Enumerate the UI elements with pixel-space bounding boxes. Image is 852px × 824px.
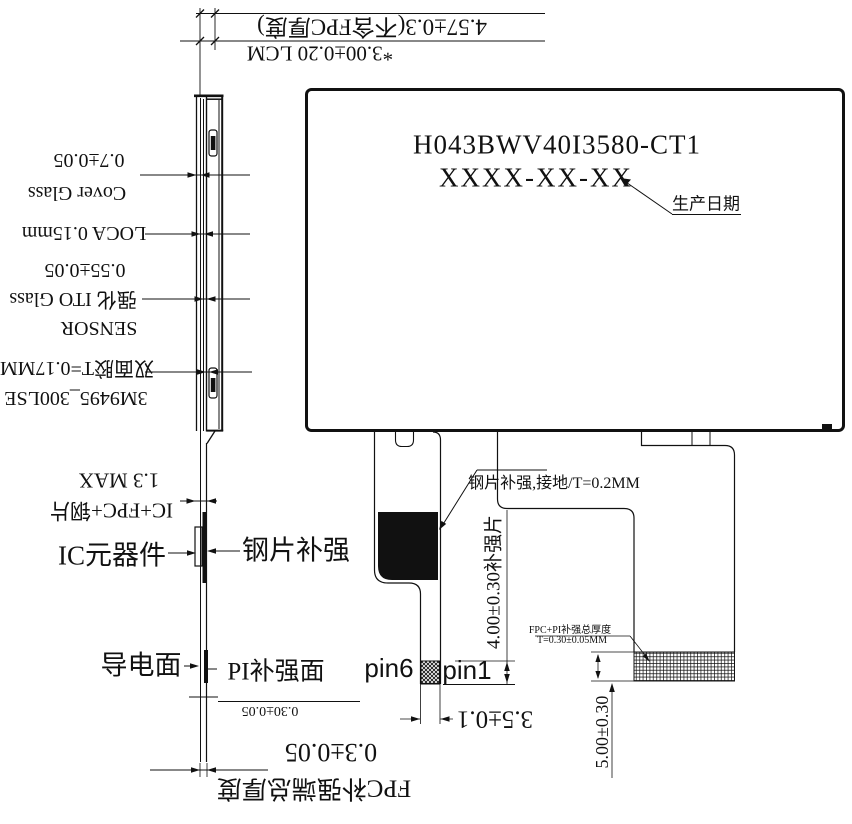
ic-max-thickness-label: 1.3 MAX — [79, 470, 160, 491]
pin-width-arrowheads — [411, 716, 450, 722]
pin6-label: pin6 — [364, 655, 413, 681]
layer-dimension-arrowheads — [187, 172, 219, 556]
ic-stackup-label: IC+FPC+钢片 — [49, 500, 173, 521]
right-fpc-tail — [498, 432, 735, 681]
pin-connector-hatch — [421, 661, 440, 684]
lcd-module-engineering-drawing: 4.57±0.3(不含FPC厚度) *3.00±0.20 LCM 0.7±0.0… — [0, 0, 852, 824]
production-date-label: 生产日期 — [672, 196, 740, 213]
fpc-pi-stiffener-crosshatch — [634, 652, 735, 681]
cover-glass-label: Cover Glass — [28, 183, 126, 203]
sensor-glass-label: 强化 ITO Glass — [9, 289, 136, 309]
tail-notch — [396, 432, 414, 447]
fpc-pi-thickness-note-line2: T=0.30±0.05MM — [537, 636, 607, 646]
conductive-face-label: 导电面 — [101, 653, 182, 680]
steel-reinforcement-label: 钢片补强 — [242, 538, 350, 565]
panel-date-code: XXXX-XX-XX — [439, 165, 633, 192]
fpc-bend-line — [207, 431, 215, 444]
pin1-label: pin1 — [442, 657, 491, 683]
fpc-end-arrowheads — [190, 663, 216, 773]
ic-component-label: IC元器件 — [58, 543, 166, 570]
stiffener-length-dim-label: 4.00±0.30补强片 — [485, 515, 504, 649]
tail-length-dim-label: 5.00±0.30 — [593, 696, 611, 769]
drawing-linework — [0, 0, 852, 824]
pi-thickness-dim-label: 0.30±0.05 — [242, 703, 299, 717]
total-thickness-dim-label: 4.57±0.3(不含FPC厚度) — [257, 16, 487, 39]
pi-face-label: PI补强面 — [227, 660, 324, 685]
cover-glass-thickness-label: 0.7±0.05 — [54, 150, 125, 170]
pin-width-dim-label: 3.5±0.1 — [457, 707, 533, 732]
lcm-thickness-dim-label: *3.00±0.20 LCM — [247, 43, 393, 64]
steel-stiffener-bar — [203, 512, 207, 583]
loca-layer-label: LOCA 0.15mm — [22, 223, 146, 243]
sensor-glass-thickness-label: 0.55±0.05 — [45, 260, 126, 280]
left-fpc-tail — [375, 432, 441, 684]
end-thickness-dim-label: 0.3±0.05 — [285, 739, 377, 765]
steel-reinforcement-block — [378, 512, 438, 580]
pi-stiffener-bar — [204, 650, 208, 683]
adhesive-tape-label: 双面胶T=0.17MM — [0, 358, 154, 378]
tape-model-label: 3M9495_300LSE — [4, 388, 147, 408]
panel-model-number: H043BWV40I3580-CT1 — [413, 132, 701, 159]
steel-grounding-note: 钢片补强,接地/T=0.2MM — [468, 476, 640, 492]
side-view-cross-section — [194, 96, 224, 762]
end-thickness-name-label: FPC补强端总厚度 — [217, 776, 411, 801]
panel-edge-mark — [822, 424, 832, 431]
sensor-label: SENSOR — [61, 318, 138, 338]
